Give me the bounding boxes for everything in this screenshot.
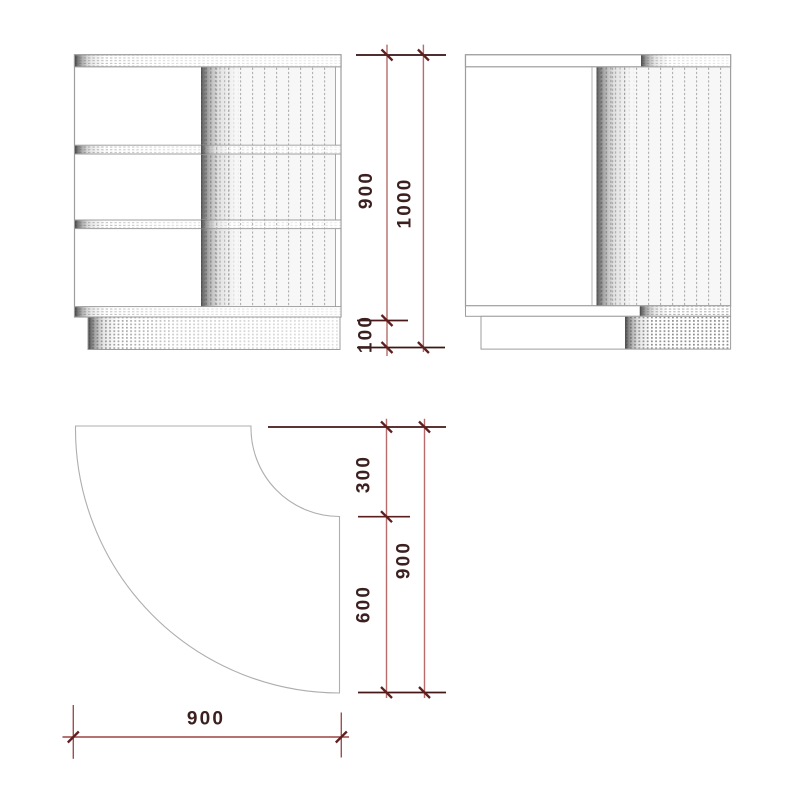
svg-text:900: 900 xyxy=(394,541,415,579)
svg-text:100: 100 xyxy=(356,315,377,353)
svg-text:900: 900 xyxy=(356,171,377,209)
svg-text:600: 600 xyxy=(354,585,375,623)
svg-text:1000: 1000 xyxy=(395,177,416,228)
svg-text:900: 900 xyxy=(187,709,225,730)
svg-text:300: 300 xyxy=(354,455,375,493)
